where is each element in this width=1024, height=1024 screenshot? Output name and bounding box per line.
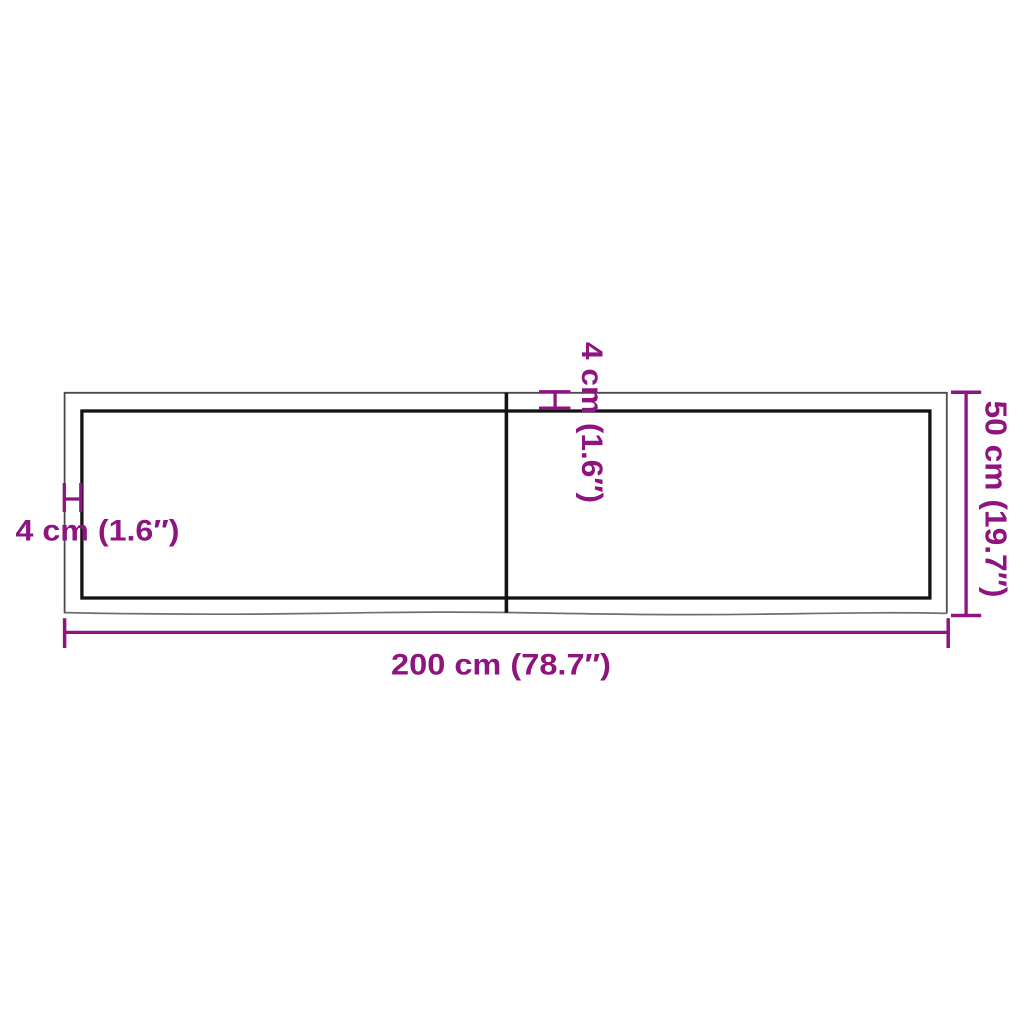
svg-text:200 cm (78.7″): 200 cm (78.7″) bbox=[391, 649, 611, 682]
svg-text:4 cm (1.6″): 4 cm (1.6″) bbox=[16, 515, 180, 548]
svg-text:50 cm (19.7″): 50 cm (19.7″) bbox=[979, 401, 1014, 598]
svg-text:4 cm (1.6″): 4 cm (1.6″) bbox=[575, 342, 608, 503]
